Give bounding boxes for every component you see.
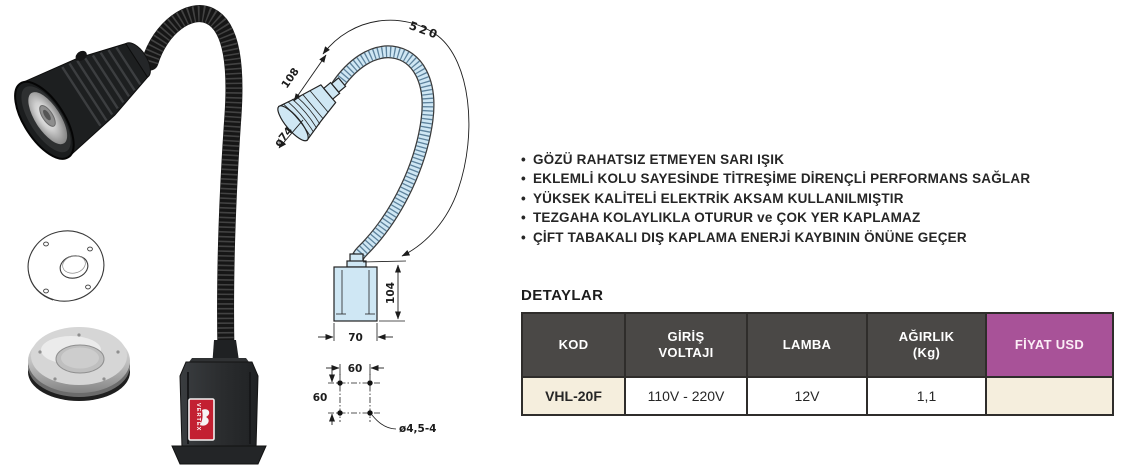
feature-text: ÇİFT TABAKALI DIŞ KAPLAMA ENERJİ KAYBINI… <box>533 228 967 247</box>
header-agirlik: AĞIRLIK (Kg) <box>867 313 986 377</box>
cell-giris-voltaji: 110V - 220V <box>625 377 747 415</box>
list-item: • TEZGAHA KOLAYLIKLA OTURUR ve ÇOK YER K… <box>521 208 1121 227</box>
magnetic-base-photo <box>28 327 130 401</box>
bullet-icon: • <box>521 208 526 227</box>
dim-108-label: 108 <box>279 66 301 91</box>
dim-60v-label: 60 <box>313 392 328 404</box>
dim-104-label: 104 <box>385 282 397 304</box>
list-item: • ÇİFT TABAKALI DIŞ KAPLAMA ENERJİ KAYBI… <box>521 228 1121 247</box>
washer-drawing <box>22 224 111 308</box>
gooseneck-arm-photo <box>150 14 234 352</box>
list-item: • GÖZÜ RAHATSIZ ETMEYEN SARI IŞIK <box>521 150 1121 169</box>
bullet-icon: • <box>521 169 526 188</box>
lamp-base-drawing <box>334 254 377 321</box>
cell-lamba: 12V <box>747 377 867 415</box>
bullet-icon: • <box>521 150 526 169</box>
feature-text: GÖZÜ RAHATSIZ ETMEYEN SARI IŞIK <box>533 150 784 169</box>
lamp-base-photo: VERTEX <box>172 340 266 464</box>
dim-520-label: 520 <box>407 18 441 42</box>
feature-list: • GÖZÜ RAHATSIZ ETMEYEN SARI IŞIK • EKLE… <box>521 150 1121 247</box>
bullet-icon: • <box>521 189 526 208</box>
cell-agirlik: 1,1 <box>867 377 986 415</box>
dim-base-height: 104 <box>379 265 405 321</box>
details-title: DETAYLAR <box>521 287 1114 304</box>
cell-fiyat <box>986 377 1113 415</box>
table-row: VHL-20F 110V - 220V 12V 1,1 <box>522 377 1113 415</box>
feature-text: YÜKSEK KALİTELİ ELEKTRİK AKSAM KULLANILM… <box>533 189 904 208</box>
table-header-row: KOD GİRİŞ VOLTAJI LAMBA AĞIRLIK (Kg) FİY… <box>522 313 1113 377</box>
brand-label: VERTEX <box>189 399 214 440</box>
feature-text: TEZGAHA KOLAYLIKLA OTURUR ve ÇOK YER KAP… <box>533 208 921 227</box>
details-section: DETAYLAR KOD GİRİŞ VOLTAJI LAMBA AĞIRLIK… <box>521 287 1114 416</box>
cell-kod: VHL-20F <box>522 377 625 415</box>
bullet-icon: • <box>521 228 526 247</box>
catalog-page: VERTEX <box>0 0 1141 473</box>
list-item: • EKLEMLİ KOLU SAYESİNDE TİTREŞİME DİREN… <box>521 169 1121 188</box>
dim-base-width: 70 <box>318 323 393 344</box>
brand-label-text: VERTEX <box>195 403 201 431</box>
list-item: • YÜKSEK KALİTELİ ELEKTRİK AKSAM KULLANI… <box>521 189 1121 208</box>
technical-drawing: 520 108 ø74 104 70 <box>260 0 515 473</box>
header-fiyat-usd: FİYAT USD <box>986 313 1113 377</box>
lamp-head-photo <box>4 18 169 168</box>
dim-hole-spec-label: ø4,5-4 <box>399 423 436 435</box>
dim-60h-label: 60 <box>348 363 363 375</box>
header-giris-voltaji: GİRİŞ VOLTAJI <box>625 313 747 377</box>
spec-table: KOD GİRİŞ VOLTAJI LAMBA AĞIRLIK (Kg) FİY… <box>521 312 1114 416</box>
header-kod: KOD <box>522 313 625 377</box>
feature-text: EKLEMLİ KOLU SAYESİNDE TİTREŞİME DİRENÇL… <box>533 169 1030 188</box>
header-lamba: LAMBA <box>747 313 867 377</box>
gooseneck-arm-drawing <box>337 52 428 260</box>
mounting-hole-pattern: 60 60 ø4,5-4 <box>313 363 437 435</box>
dim-70-label: 70 <box>348 332 363 344</box>
product-photo: VERTEX <box>0 0 270 473</box>
